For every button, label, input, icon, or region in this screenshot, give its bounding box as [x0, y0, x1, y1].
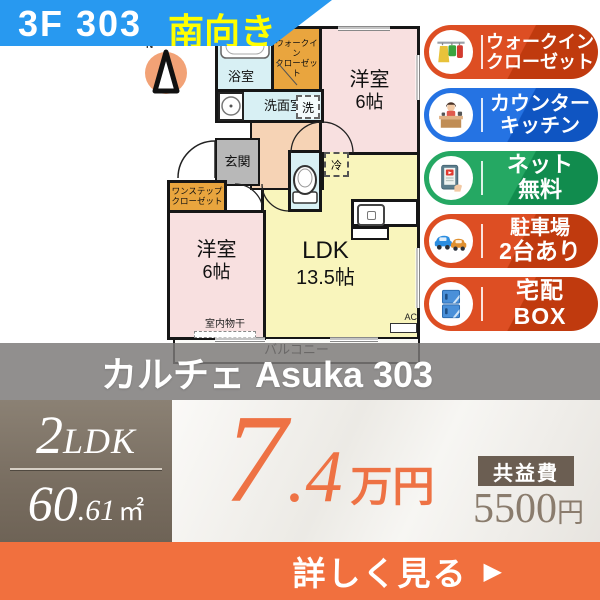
- ac-unit: AC: [390, 312, 417, 333]
- area-value: 60.61㎡: [0, 474, 172, 532]
- badge-divider: [481, 161, 483, 195]
- feature-badges: ウォークインクローゼット カウンターキッチン: [424, 25, 598, 331]
- west-upper-label: 洋室 6帖: [350, 69, 390, 113]
- badge-delivery-box: 宅配BOX: [424, 277, 598, 331]
- badge-walkin-closet-label: ウォークインクローゼット: [486, 25, 594, 79]
- badge-divider: [481, 98, 483, 132]
- summary-section: 2LDK 60.61㎡ 7.4万円 共益費 5500円: [0, 400, 600, 542]
- rent-value: 7.4万円: [224, 400, 435, 520]
- badge-delivery-box-label: 宅配BOX: [486, 277, 594, 331]
- ac-unit-box: [390, 323, 417, 333]
- layout-value: 2LDK: [0, 404, 172, 466]
- parking-icon: [429, 219, 473, 263]
- onestep-closet-label: ワンステップ クローゼット: [171, 187, 222, 207]
- badge-parking: 駐車場2台あり: [424, 214, 598, 268]
- badge-divider: [481, 224, 483, 258]
- kitchen-counter: [351, 199, 419, 227]
- arrow-right-icon: ▶: [484, 557, 502, 586]
- listing-card: 玄関 洋室 6帖 浴室 ウォークイン クローゼット 洗面室 洋室 6帖 ワンステ…: [0, 0, 600, 600]
- room-west-upper: 洋室 6帖: [319, 26, 420, 155]
- badge-divider: [481, 35, 483, 69]
- room-toilet: [288, 150, 322, 212]
- badge-parking-label: 駐車場2台あり: [486, 214, 594, 268]
- compass-icon: [141, 46, 191, 96]
- property-name: カルチェ Asuka 303: [101, 346, 433, 398]
- badge-counter-kitchen: カウンターキッチン: [424, 88, 598, 142]
- indoor-drying: 室内物干: [194, 315, 256, 338]
- entrance-label: 玄関: [224, 155, 250, 170]
- details-button[interactable]: 詳しく見る ▶: [0, 542, 600, 600]
- room-onestep-closet: ワンステップ クローゼット: [167, 180, 227, 213]
- badge-free-internet-label: ネット無料: [486, 151, 594, 205]
- property-name-bar: カルチェ Asuka 303: [0, 343, 600, 400]
- bath-label: 浴室: [228, 66, 254, 85]
- washer-space: 洗: [296, 95, 320, 119]
- ldk-label: LDK 13.5帖: [296, 237, 355, 290]
- layout-area-box: 2LDK 60.61㎡: [0, 400, 172, 542]
- kitchen-sink-icon: [357, 204, 385, 226]
- walk-in-closet-icon: [429, 30, 473, 74]
- indoor-drying-rail: [194, 331, 256, 338]
- fee-value: 5500円: [450, 488, 584, 530]
- badge-walkin-closet: ウォークインクローゼット: [424, 25, 598, 79]
- badge-divider: [481, 287, 483, 321]
- free-internet-icon: [429, 156, 473, 200]
- unit-number: 3F 303: [18, 3, 142, 45]
- fridge-space: 冷: [324, 152, 349, 177]
- delivery-box-icon: [429, 282, 473, 326]
- walkin-closet-label: ウォークイン クローゼット: [274, 39, 319, 78]
- badge-counter-kitchen-label: カウンターキッチン: [486, 88, 594, 142]
- spec-divider: [10, 468, 162, 470]
- fee-label-badge: 共益費: [478, 456, 574, 486]
- west-lower-label: 洋室 6帖: [197, 239, 237, 283]
- counter-kitchen-icon: [429, 93, 473, 137]
- room-entrance: 玄関: [215, 138, 260, 186]
- kitchen-counter-step: [351, 227, 389, 240]
- badge-free-internet: ネット無料: [424, 151, 598, 205]
